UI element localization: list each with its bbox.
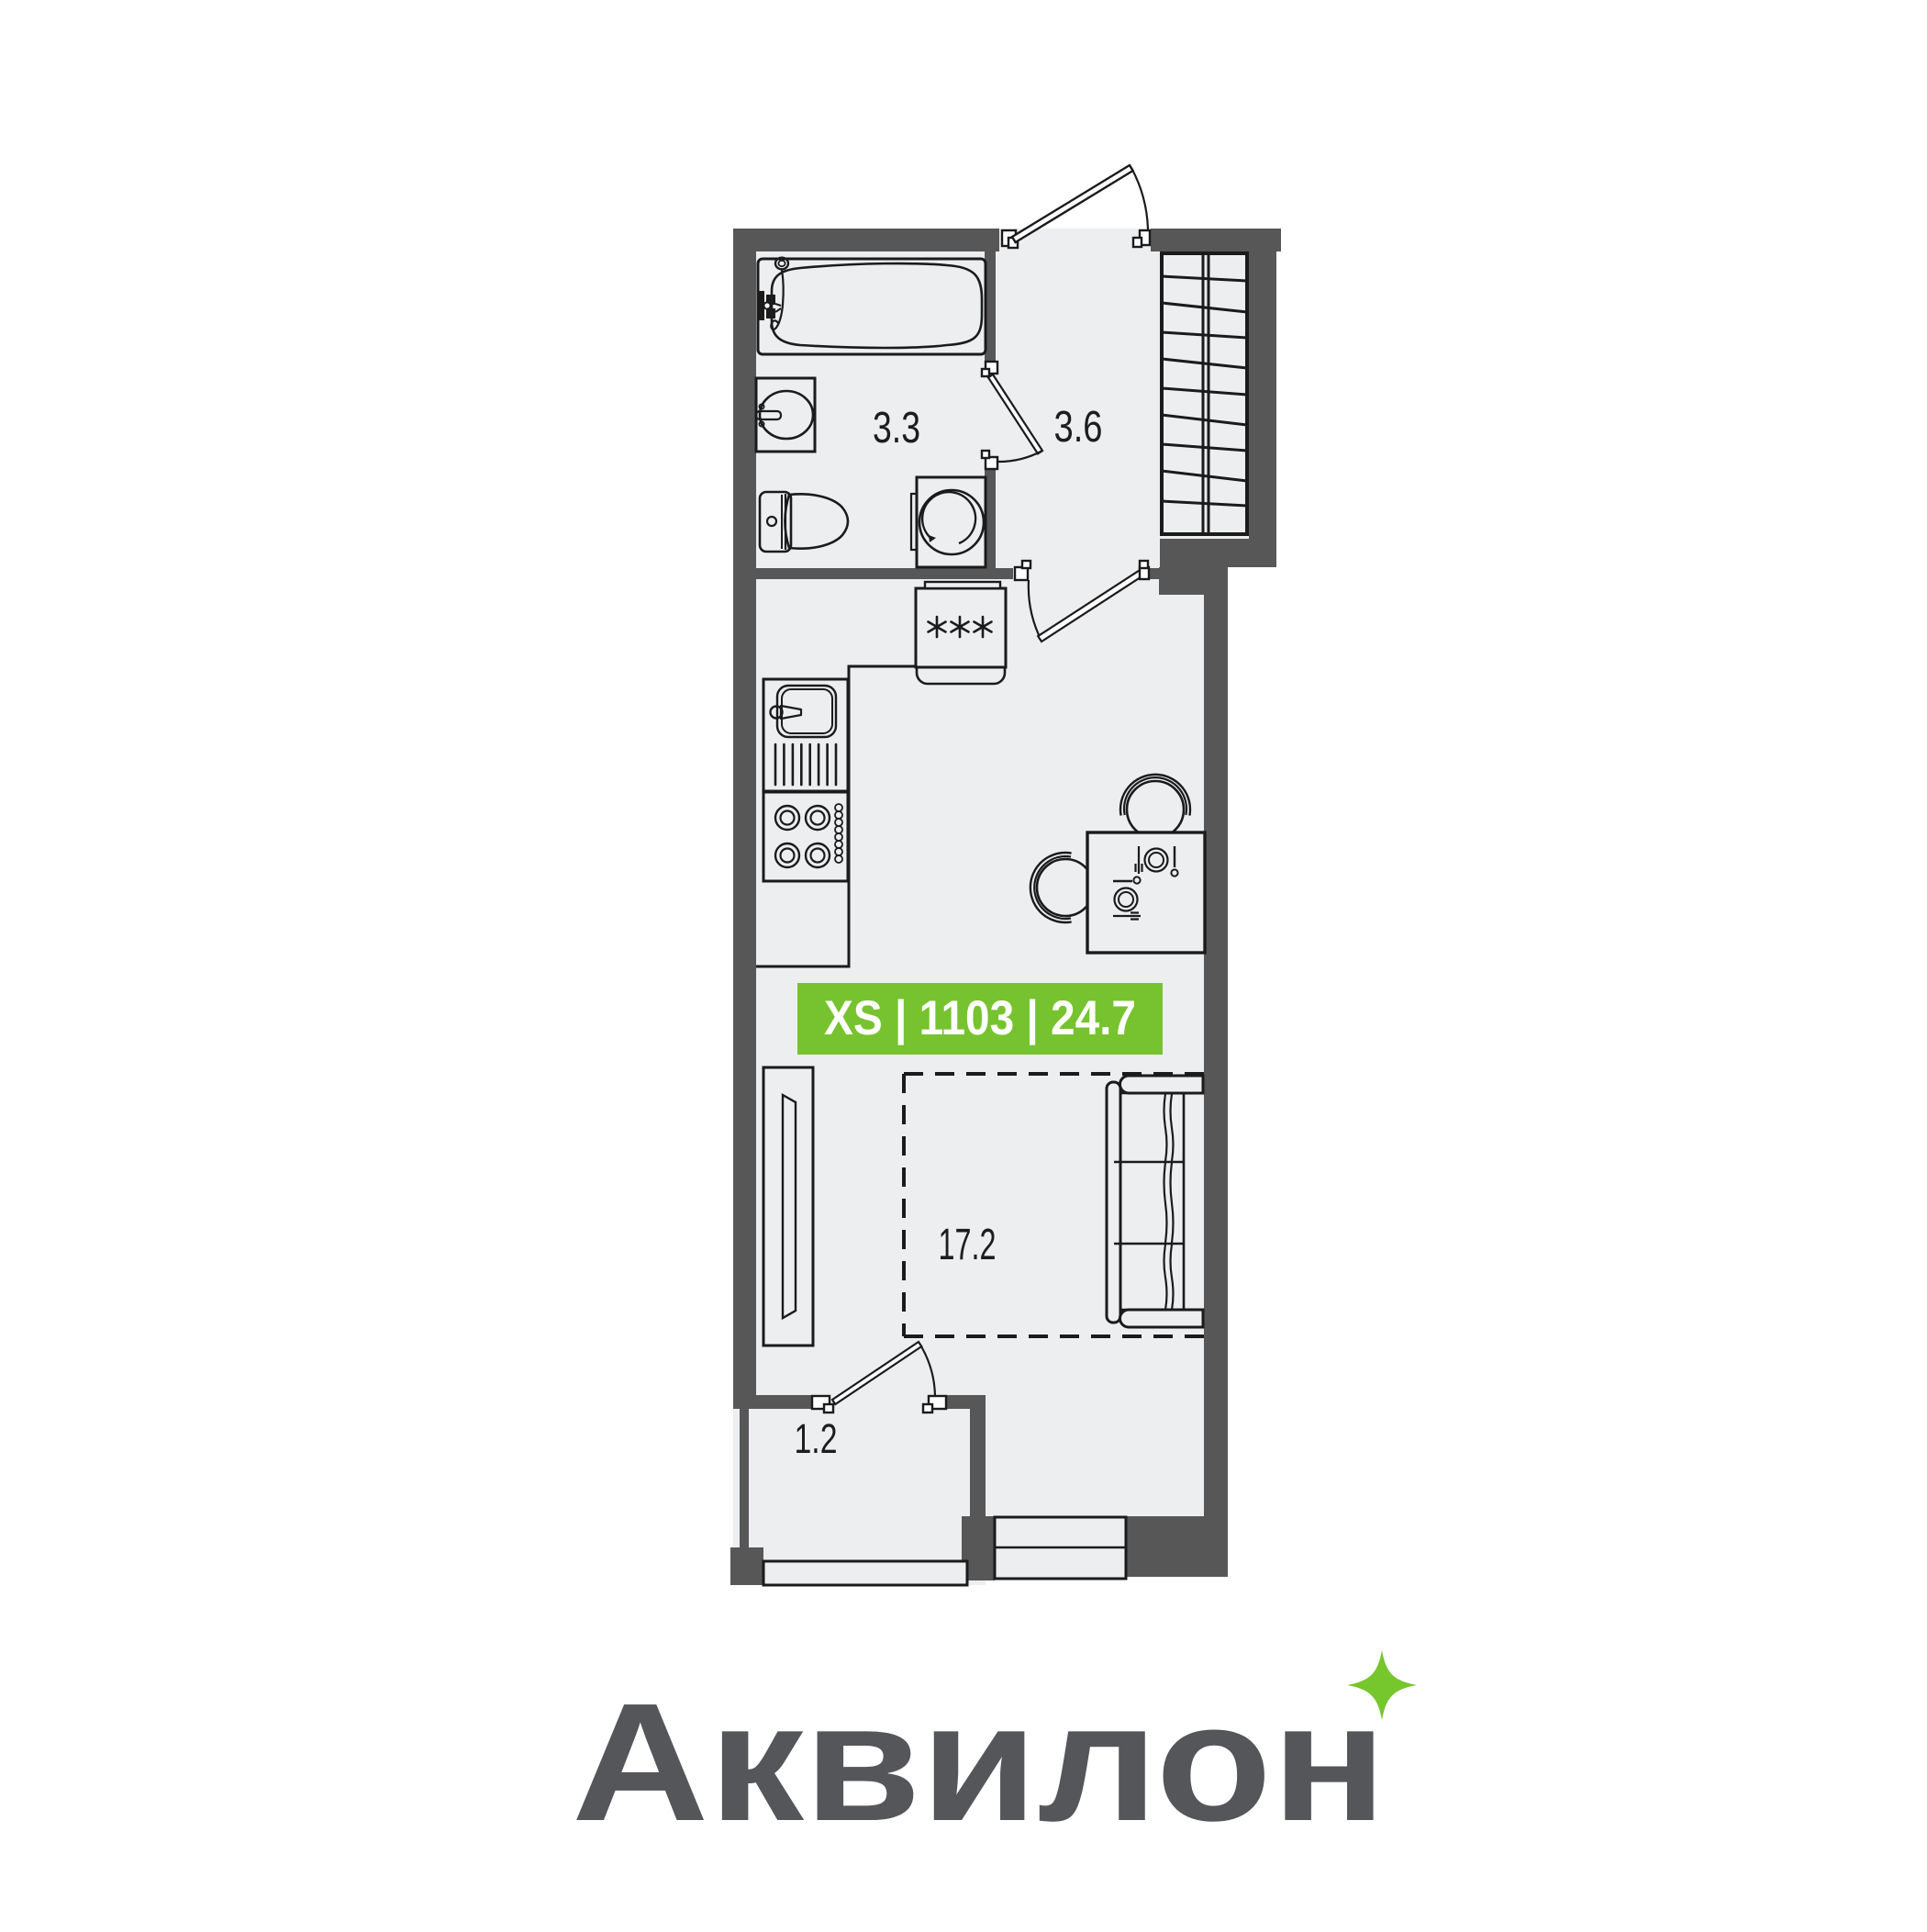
svg-text:3.6: 3.6 — [1054, 403, 1103, 452]
svg-text:XS | 1103 | 24.7: XS | 1103 | 24.7 — [824, 991, 1136, 1046]
svg-text:Аквилон: Аквилон — [572, 1668, 1387, 1856]
svg-text:17.2: 17.2 — [939, 1221, 997, 1269]
svg-text:3.3: 3.3 — [873, 404, 920, 452]
svg-text:1.2: 1.2 — [795, 1415, 838, 1462]
